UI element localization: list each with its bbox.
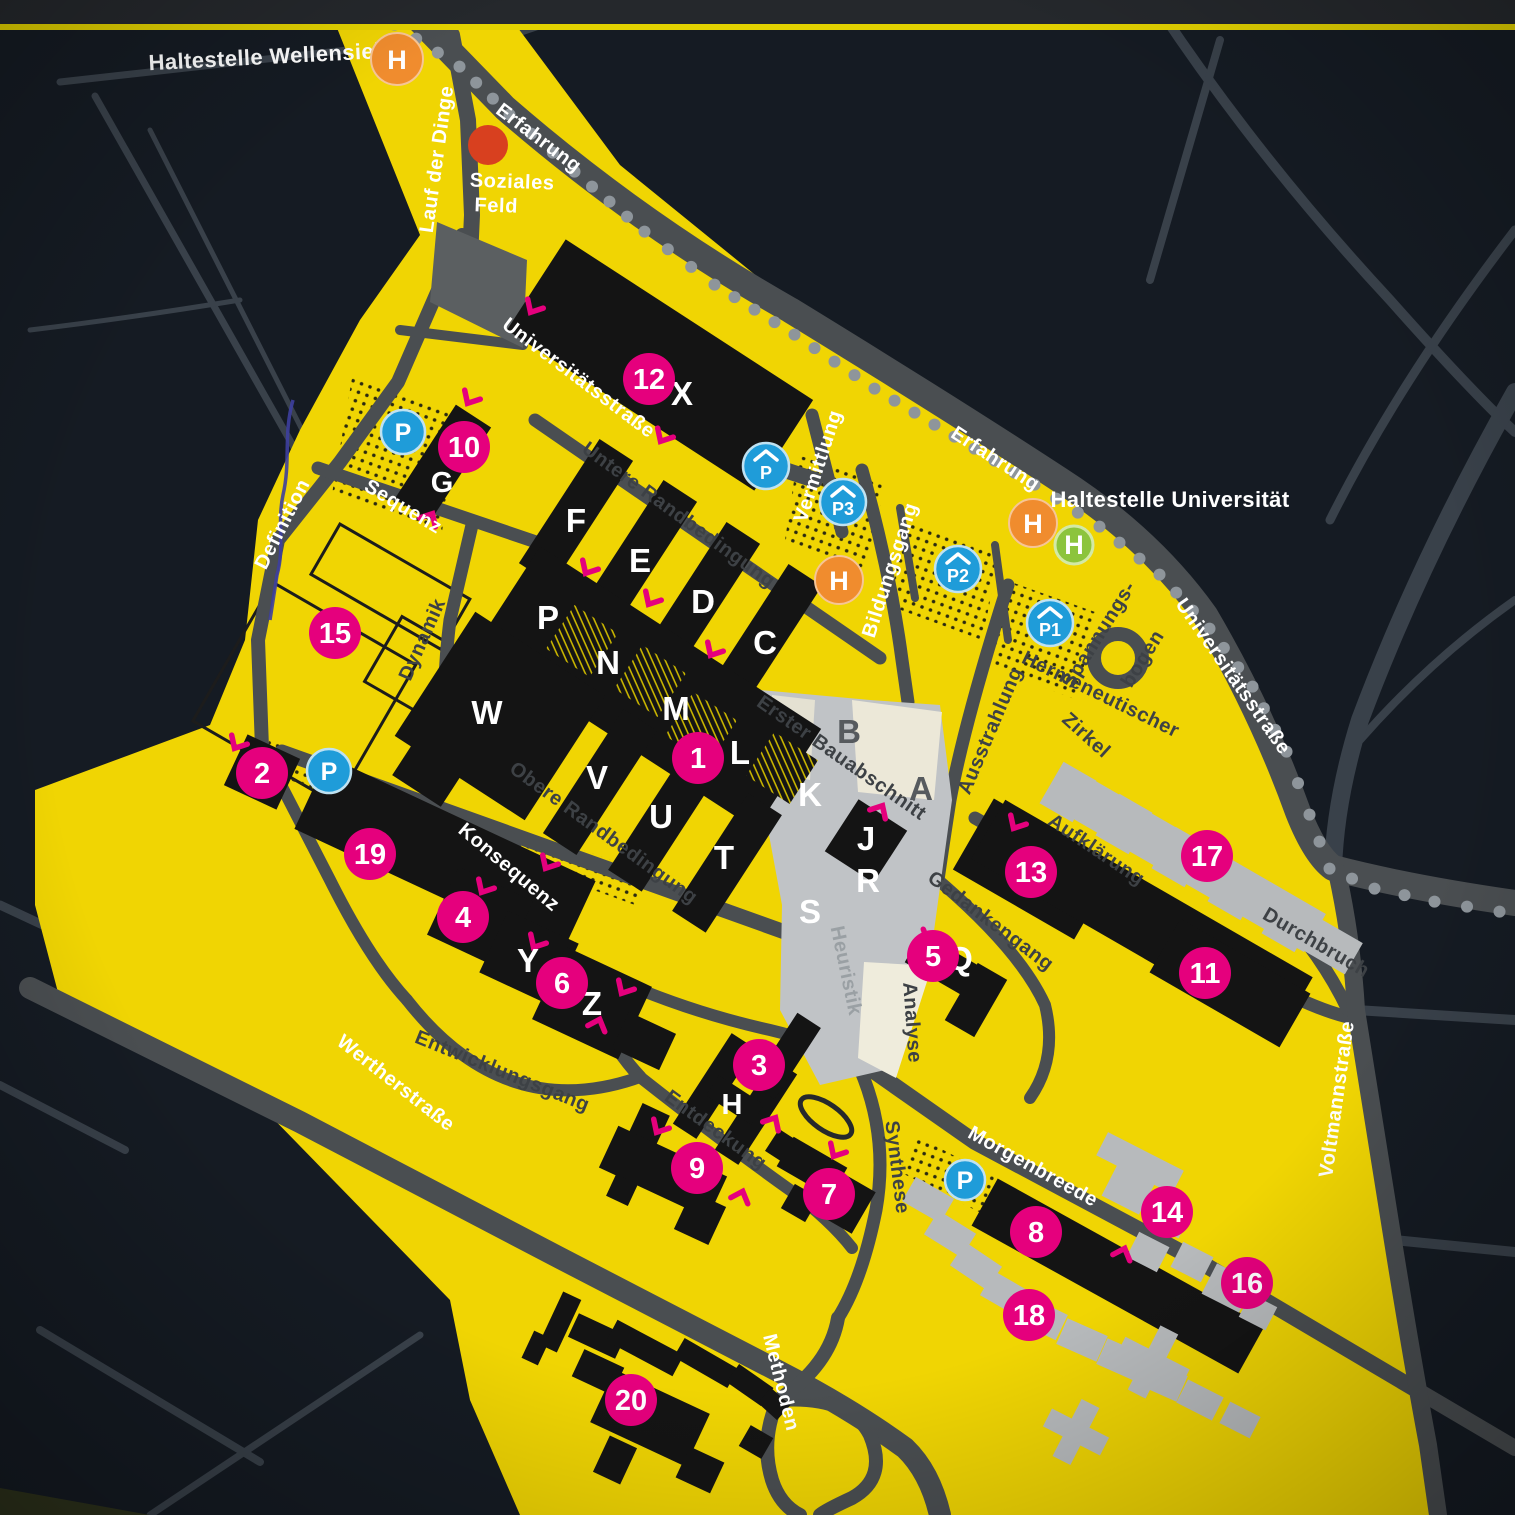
vignette [0,0,1515,1515]
campus-map-sign: Haltestelle Wellensiek Lauf der Dinge Er… [0,0,1515,1515]
